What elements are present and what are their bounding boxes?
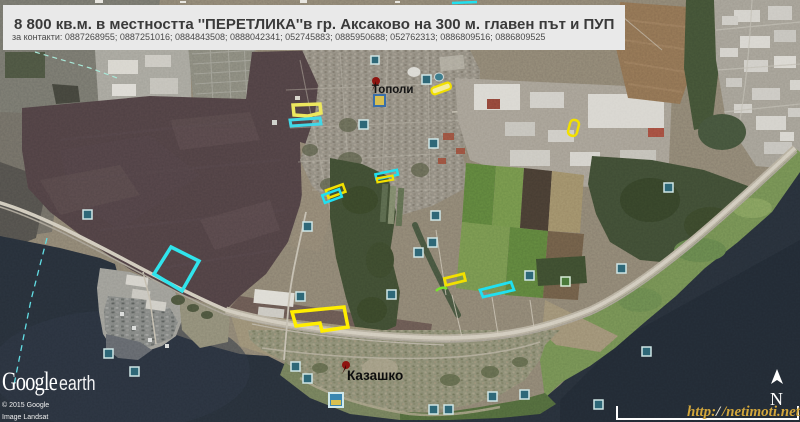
svg-text:N: N <box>770 389 783 409</box>
svg-text:Google: Google <box>2 368 57 397</box>
svg-text:8 800 кв.м. в местността ''ПЕР: 8 800 кв.м. в местността ''ПЕРЕТЛИКА''в … <box>14 16 614 33</box>
svg-text:за контакти: 0887268955; 08872: за контакти: 0887268955; 0887251016; 088… <box>12 32 545 42</box>
svg-text:Тополи: Тополи <box>372 84 413 96</box>
svg-text:© 2015 Google: © 2015 Google <box>2 401 49 409</box>
svg-text:http:: http: <box>687 404 716 420</box>
svg-text:Казашко: Казашко <box>347 368 403 383</box>
svg-text:/netimoti.net: /netimoti.net <box>721 404 800 420</box>
svg-text:Image Landsat: Image Landsat <box>2 414 48 421</box>
svg-text:earth: earth <box>59 372 95 394</box>
